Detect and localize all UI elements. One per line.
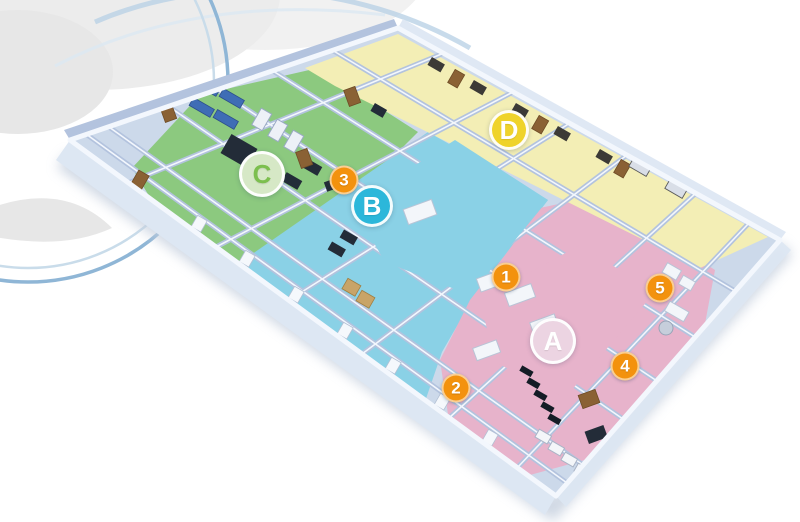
floorplan-image: ABCD12345	[0, 0, 800, 522]
floorplan-scene	[0, 0, 800, 522]
furniture-round-table	[659, 321, 673, 335]
swirl-shape	[0, 198, 112, 241]
building	[56, 19, 791, 515]
